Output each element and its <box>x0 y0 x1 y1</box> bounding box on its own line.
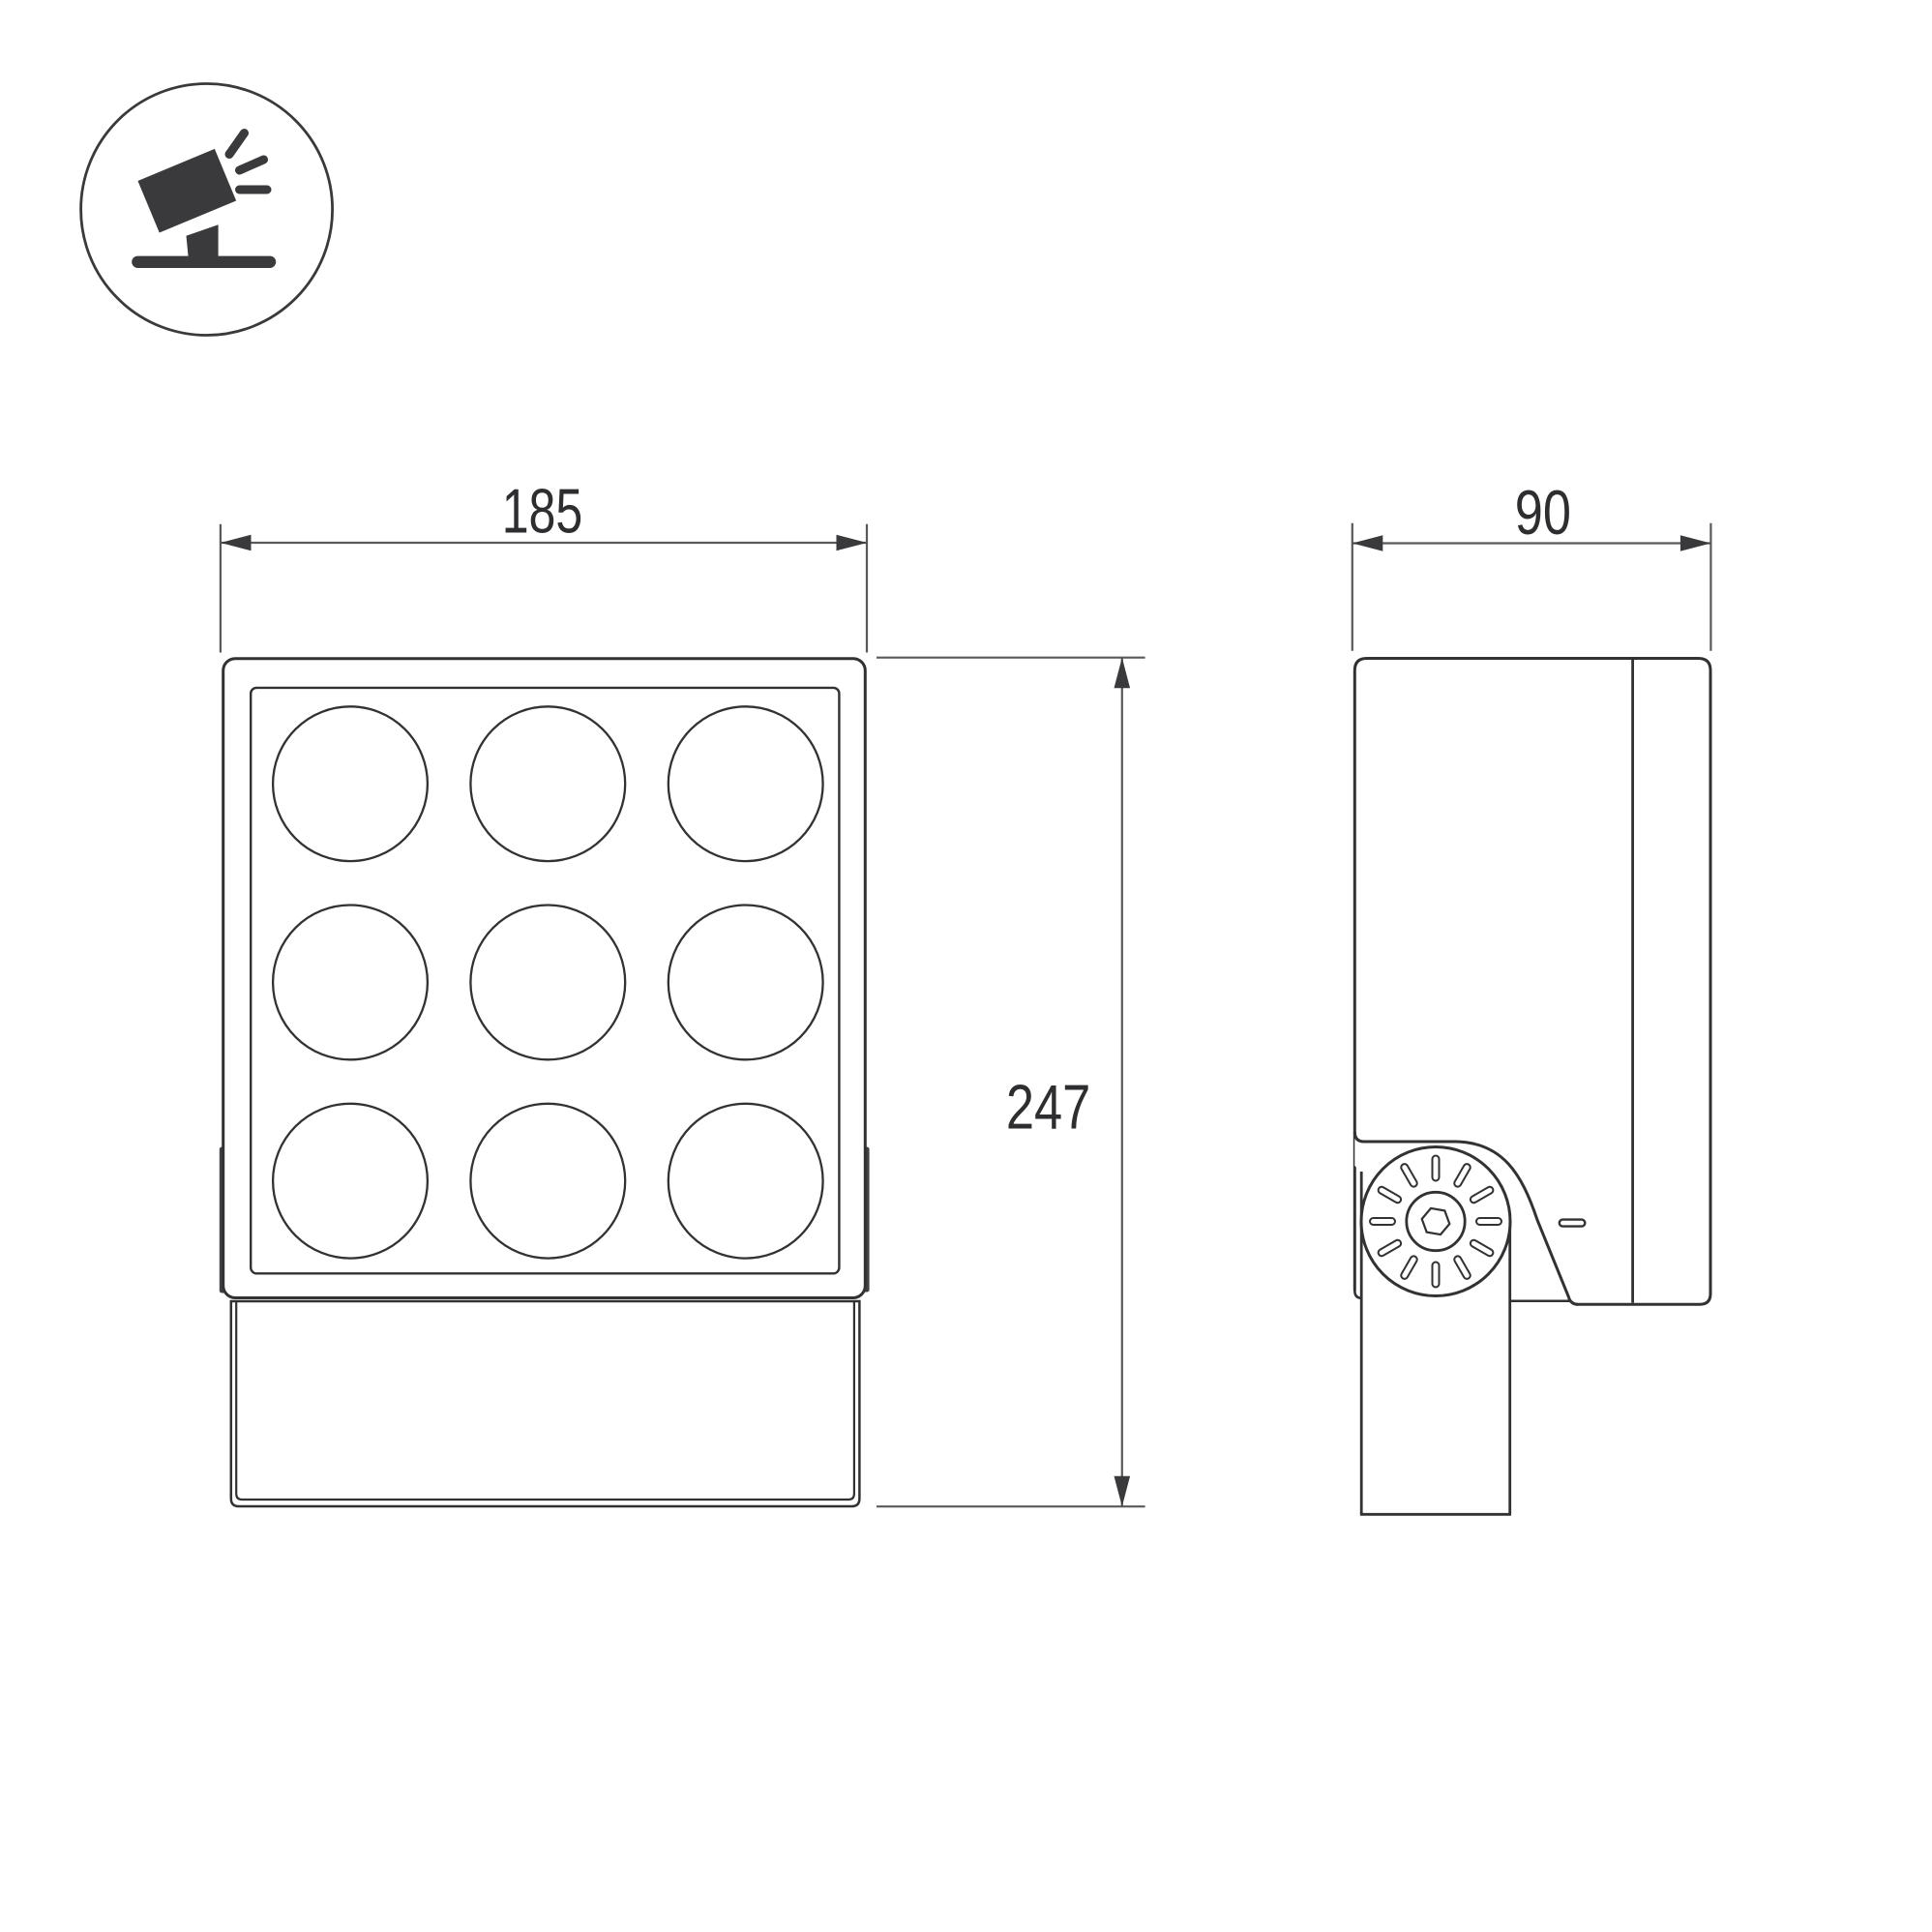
svg-text:185: 185 <box>502 476 583 547</box>
svg-text:90: 90 <box>1515 477 1571 548</box>
svg-text:247: 247 <box>1006 1072 1090 1143</box>
